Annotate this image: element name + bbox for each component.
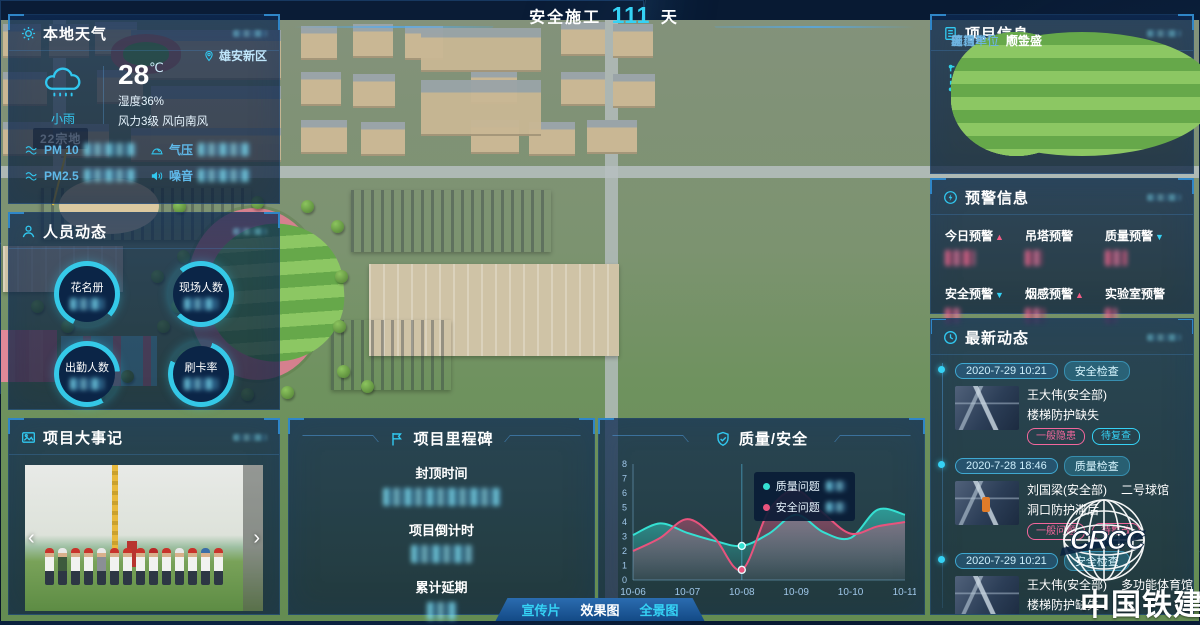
- location-label: 雄安新区: [219, 47, 267, 64]
- weather-condition: 小雨: [27, 110, 99, 127]
- milestone-item: 项目倒计时: [289, 520, 594, 568]
- svg-text:10-11: 10-11: [893, 587, 916, 598]
- chart-tooltip: 质量问题安全问题: [754, 472, 855, 521]
- update-datetime: 2020-7-29 10:21: [955, 553, 1058, 569]
- shield-check-icon: [715, 431, 731, 447]
- trend-up-icon: ▲: [1075, 290, 1084, 300]
- rain-cloud-icon: [40, 63, 86, 103]
- header-prefix: 安全施工: [529, 10, 601, 27]
- update-entry[interactable]: 2020-7-29 10:21安全检查王大伟(安全部)楼梯防护缺失一般隐患待复查: [955, 361, 1193, 445]
- tooltip-series-row: 安全问题: [763, 499, 846, 515]
- milestone-value-blurred: [383, 488, 501, 506]
- warning-count-blurred: [1105, 250, 1127, 266]
- svg-text:10-10: 10-10: [838, 587, 864, 598]
- gear-icon: [21, 26, 36, 41]
- quality-safety-chart[interactable]: 01234567810-0610-0710-0810-0910-1010-11质…: [599, 456, 924, 614]
- warnings-panel: 预警信息 今日预警▲吊塔预警质量预警▼安全预警▼烟感预警▲实验室预警: [930, 178, 1194, 314]
- svg-text:2: 2: [622, 546, 627, 556]
- clock-icon: [943, 330, 958, 345]
- people-row: [29, 548, 239, 585]
- milestone-panel-title: 项目里程碑: [413, 428, 493, 449]
- tooltip-series-row: 质量问题: [763, 478, 846, 494]
- safe-days-count: 111: [612, 2, 651, 28]
- gauge-value-blurred: [184, 298, 218, 310]
- pressure-icon: [150, 144, 164, 156]
- photo-icon: [21, 430, 36, 445]
- gauge-inner: 现场人数: [173, 266, 229, 322]
- warning-count-blurred: [945, 250, 975, 266]
- svg-text:10-06: 10-06: [620, 587, 646, 598]
- personnel-gauge: 花名册: [54, 261, 120, 327]
- tree: [301, 200, 314, 213]
- apartment-block: [353, 24, 393, 58]
- warning-item: 质量预警▼: [1105, 227, 1185, 269]
- worker-photo: [955, 481, 1019, 525]
- svg-text:10-07: 10-07: [675, 587, 701, 598]
- field-value: 顺金盛: [1006, 34, 1042, 48]
- update-issue: 楼梯防护缺失: [1027, 406, 1140, 423]
- person-figure: [123, 548, 132, 585]
- header-deco-blur: [1147, 30, 1181, 37]
- updates-panel-title: 最新动态: [965, 327, 1029, 348]
- header-deco-blur: [233, 30, 267, 37]
- svg-text:10-08: 10-08: [729, 587, 755, 598]
- air-metric-value-blurred: [84, 169, 136, 182]
- tree: [333, 320, 346, 333]
- status-badge: 待复查: [1092, 428, 1140, 445]
- weather-panel-title: 本地天气: [43, 23, 107, 44]
- apartment-block: [301, 26, 337, 60]
- svg-text:4: 4: [622, 517, 627, 527]
- personnel-gauge: 现场人数: [168, 261, 234, 327]
- warnings-panel-header: 预警信息: [931, 179, 1193, 215]
- header-deco-blur: [1147, 194, 1181, 201]
- svg-text:3: 3: [622, 532, 627, 542]
- update-body: 王大伟(安全部)楼梯防护缺失一般隐患待复查: [955, 386, 1193, 445]
- air-metric-label: 噪音: [169, 167, 193, 184]
- gauge-value-blurred: [184, 378, 218, 390]
- gauge-label: 刷卡率: [185, 359, 218, 375]
- project-info-panel: 项目信息 项目面积万m²项目工期天 项目类型房建结构形式框架结构开工日期2020…: [930, 14, 1194, 174]
- svg-text:8: 8: [622, 459, 627, 469]
- timeline-line: [942, 363, 943, 608]
- update-pills: 2020-7-28 18:46质量检查: [955, 456, 1193, 476]
- air-metric: PM 10: [25, 141, 144, 158]
- legend-series-name: 安全问题: [776, 499, 820, 515]
- field-label: 监理单位: [951, 34, 999, 48]
- svg-text:1: 1: [622, 561, 627, 571]
- crcc-globe-icon: CRCC: [1052, 492, 1156, 592]
- svg-text:5: 5: [622, 503, 627, 513]
- photo-prev-button[interactable]: ‹: [28, 528, 35, 548]
- tree: [331, 220, 344, 233]
- air-metric: 气压: [150, 141, 269, 158]
- update-category: 安全检查: [1064, 361, 1130, 381]
- update-datetime: 2020-7-28 18:46: [955, 458, 1058, 474]
- gauge-inner: 刷卡率: [173, 346, 229, 402]
- apartment-row: [421, 80, 541, 136]
- noise-icon: [150, 170, 164, 182]
- tree: [281, 386, 294, 394]
- update-datetime: 2020-7-29 10:21: [955, 363, 1058, 379]
- gauge-label: 花名册: [71, 279, 104, 295]
- warning-label: 实验室预警: [1105, 285, 1185, 302]
- weather-panel: 本地天气 雄安新区 小雨 28℃ 湿度36% 风力3级 风向南风 PM 10气压…: [8, 14, 280, 204]
- tooltip-value-blurred: [826, 502, 846, 512]
- air-metric-label: PM 10: [44, 143, 79, 157]
- person-figure: [162, 548, 171, 585]
- photo-carousel: ‹ ›: [25, 465, 263, 611]
- header-deco-line: [714, 26, 915, 28]
- person-figure: [149, 548, 158, 585]
- quality-safety-panel: 质量/安全 01234567810-0610-0710-0810-0910-10…: [598, 418, 925, 615]
- waves-icon: [25, 144, 39, 156]
- temperature-unit: ℃: [149, 60, 164, 75]
- apartment-block: [301, 120, 347, 154]
- warning-count-blurred: [1025, 250, 1043, 266]
- apartment-block: [613, 74, 644, 108]
- gauge-inner: 出勤人数: [59, 346, 115, 402]
- warning-label: 今日预警▲: [945, 227, 1025, 244]
- update-person: 王大伟(安全部): [1027, 388, 1107, 402]
- update-person-line: 王大伟(安全部): [1027, 386, 1140, 403]
- gauge-inner: 花名册: [59, 266, 115, 322]
- air-metrics: PM 10气压PM2.5噪音: [9, 133, 279, 184]
- crcc-name-text: 中国铁建: [1080, 580, 1200, 624]
- header-suffix: 天: [661, 10, 679, 27]
- wind-text: 风力3级 风向南风: [118, 113, 208, 129]
- milestone-value-blurred: [427, 602, 457, 620]
- person-figure: [136, 548, 145, 585]
- gauge-value-blurred: [70, 378, 104, 390]
- apartment-block: [301, 72, 341, 106]
- tree: [337, 365, 350, 378]
- header-deco-line: [292, 26, 493, 28]
- personnel-gauge: 出勤人数: [54, 341, 120, 407]
- legend-dot: [763, 483, 770, 490]
- personnel-panel-header: 人员动态: [9, 213, 279, 249]
- legend-dot: [763, 504, 770, 511]
- header-deco-blur: [233, 228, 267, 235]
- air-metric-label: PM2.5: [44, 169, 79, 183]
- gauge-label: 现场人数: [179, 279, 223, 295]
- school-building: [331, 320, 451, 390]
- svg-text:7: 7: [622, 474, 627, 484]
- svg-text:6: 6: [622, 488, 627, 498]
- warning-item: 吊塔预警: [1025, 227, 1105, 269]
- air-metric-label: 气压: [169, 141, 193, 158]
- events-panel-header: 项目大事记: [9, 419, 279, 455]
- status-badge: 一般隐患: [1027, 428, 1085, 445]
- svg-text:0: 0: [622, 575, 627, 585]
- warnings-grid: 今日预警▲吊塔预警质量预警▼安全预警▼烟感预警▲实验室预警: [931, 215, 1193, 327]
- air-metric-value-blurred: [84, 143, 136, 156]
- apartment-block: [353, 74, 395, 108]
- milestone-item-label: 累计延期: [289, 577, 594, 596]
- crane-in-photo: [112, 465, 118, 556]
- tooltip-value-blurred: [826, 481, 846, 491]
- apartment-block: [587, 120, 637, 154]
- trend-down-icon: ▼: [995, 290, 1004, 300]
- warning-label: 吊塔预警: [1025, 227, 1105, 244]
- person-figure: [110, 548, 119, 585]
- project-fields: 项目类型房建结构形式框架结构开工日期2020-04-30施工单位中铁十二局监理单…: [931, 106, 1193, 112]
- photo-next-button[interactable]: ›: [253, 528, 260, 548]
- person-figure: [58, 548, 67, 585]
- person-figure: [188, 548, 197, 585]
- milestone-item: 封顶时间: [289, 463, 594, 511]
- gauge-label: 出勤人数: [65, 359, 109, 375]
- tree: [361, 380, 374, 393]
- personnel-panel: 人员动态 花名册现场人数出勤人数刷卡率: [8, 212, 280, 410]
- project-field: 监理单位顺金盛: [951, 32, 1200, 156]
- apartment-block: [613, 24, 644, 58]
- update-pills: 2020-7-29 10:21安全检查: [955, 361, 1193, 381]
- divider: [103, 66, 104, 124]
- air-metric-value-blurred: [198, 169, 250, 182]
- milestone-photo-panel: 项目大事记 ‹ ›: [8, 418, 280, 615]
- events-panel-title: 项目大事记: [43, 427, 123, 448]
- quality-panel-header: 质量/安全: [599, 419, 924, 454]
- page-header: 安全施工 111 天: [283, 2, 925, 29]
- milestone-item-label: 项目倒计时: [289, 520, 594, 539]
- waves-icon: [25, 170, 39, 182]
- personnel-panel-title: 人员动态: [43, 221, 107, 242]
- warning-label: 烟感预警▲: [1025, 285, 1105, 302]
- milestone-panel: 项目里程碑 封顶时间项目倒计时累计延期: [288, 418, 595, 615]
- trend-down-icon: ▼: [1155, 232, 1164, 242]
- location-pin-icon: [203, 50, 215, 62]
- person-figure: [201, 548, 210, 585]
- svg-text:10-09: 10-09: [783, 587, 809, 598]
- milestone-item-label: 封顶时间: [289, 463, 594, 482]
- header-deco-blur: [1147, 334, 1181, 341]
- flag-icon: [389, 431, 405, 447]
- temperature-value: 28: [118, 59, 149, 90]
- quality-panel-title: 质量/安全: [739, 428, 808, 449]
- person-figure: [214, 548, 223, 585]
- update-category: 质量检查: [1064, 456, 1130, 476]
- trend-up-icon: ▲: [995, 232, 1004, 242]
- person-figure: [175, 548, 184, 585]
- air-metric: 噪音: [150, 167, 269, 184]
- person-figure: [71, 548, 80, 585]
- update-badges: 一般隐患待复查: [1027, 428, 1140, 445]
- update-text: 王大伟(安全部)楼梯防护缺失一般隐患待复查: [1027, 386, 1140, 445]
- location-badge: 雄安新区: [203, 47, 267, 64]
- group-photo[interactable]: [25, 465, 243, 611]
- person-figure: [45, 548, 54, 585]
- warnings-panel-title: 预警信息: [965, 187, 1029, 208]
- milestone-panel-header: 项目里程碑: [289, 419, 594, 454]
- humidity-text: 湿度36%: [118, 93, 208, 109]
- personnel-gauge: 刷卡率: [168, 341, 234, 407]
- apartment-block: [361, 122, 405, 156]
- warning-label: 质量预警▼: [1105, 227, 1185, 244]
- updates-panel-header: 最新动态: [931, 319, 1193, 355]
- person-figure: [84, 548, 93, 585]
- warning-item: 今日预警▲: [945, 227, 1025, 269]
- warning-label: 安全预警▼: [945, 285, 1025, 302]
- air-metric-value-blurred: [198, 143, 250, 156]
- personnel-gauges: 花名册现场人数出勤人数刷卡率: [9, 249, 279, 407]
- gym-building: [351, 190, 551, 252]
- legend-series-name: 质量问题: [776, 478, 820, 494]
- apartment-block: [561, 72, 605, 106]
- alert-bolt-icon: [943, 190, 958, 205]
- header-deco-blur: [233, 434, 267, 441]
- gauge-value-blurred: [70, 298, 104, 310]
- crcc-abbr-text: CRCC: [1070, 525, 1145, 555]
- apartment-row: [421, 28, 541, 72]
- steel-structure-photo: [955, 386, 1019, 430]
- person-figure: [97, 548, 106, 585]
- person-icon: [21, 224, 36, 239]
- weather-panel-header: 本地天气: [9, 15, 279, 51]
- air-metric: PM2.5: [25, 167, 144, 184]
- crcc-logo: CRCC 中国铁建: [1052, 492, 1198, 618]
- tree: [335, 270, 348, 283]
- milestone-value-blurred: [411, 545, 473, 563]
- steel-structure-photo: [955, 576, 1019, 615]
